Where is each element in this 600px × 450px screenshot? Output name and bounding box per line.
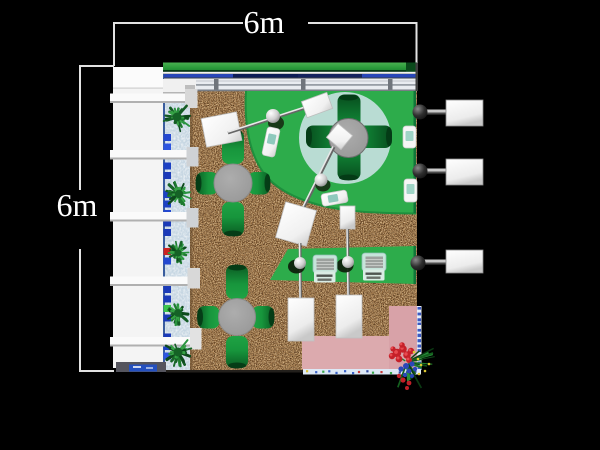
svg-text:6m: 6m (57, 187, 98, 223)
svg-text:6m: 6m (244, 4, 285, 40)
